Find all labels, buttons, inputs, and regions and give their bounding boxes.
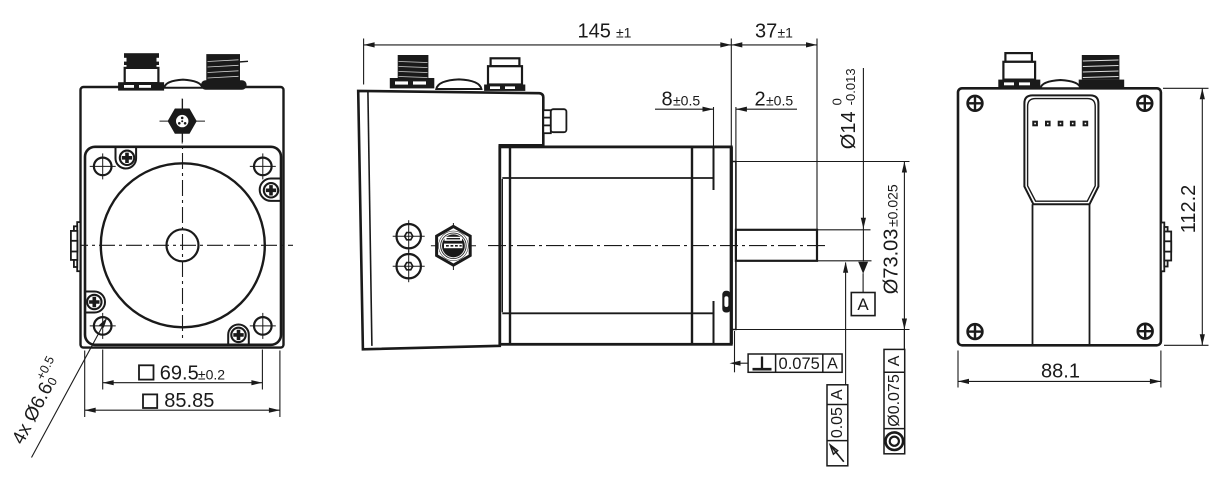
svg-text:0.05: 0.05 bbox=[829, 407, 846, 438]
svg-text:8: 8 bbox=[662, 88, 673, 110]
svg-text:112.2: 112.2 bbox=[1178, 185, 1200, 234]
svg-text:2: 2 bbox=[755, 88, 766, 110]
svg-text:A: A bbox=[827, 356, 838, 373]
svg-text:A: A bbox=[857, 295, 869, 314]
svg-text:85.85: 85.85 bbox=[164, 390, 214, 412]
svg-text:37: 37 bbox=[755, 21, 777, 43]
svg-text:±1: ±1 bbox=[778, 25, 794, 41]
svg-text:0.075: 0.075 bbox=[779, 355, 820, 373]
svg-text:±0.025: ±0.025 bbox=[884, 184, 900, 227]
svg-text:Ø73.03: Ø73.03 bbox=[880, 229, 902, 295]
svg-text:-0.013: -0.013 bbox=[843, 68, 858, 105]
svg-text:88.1: 88.1 bbox=[1041, 361, 1080, 383]
svg-text:±0.2: ±0.2 bbox=[198, 367, 225, 383]
svg-text:±1: ±1 bbox=[616, 25, 632, 41]
svg-text:69.5: 69.5 bbox=[160, 363, 199, 385]
svg-text:±0.5: ±0.5 bbox=[766, 92, 793, 108]
svg-text:Ø0.075: Ø0.075 bbox=[886, 374, 903, 427]
svg-text:A: A bbox=[886, 355, 903, 366]
svg-text:A: A bbox=[829, 389, 846, 400]
svg-text:145: 145 bbox=[578, 21, 611, 43]
svg-text:±0.5: ±0.5 bbox=[673, 92, 700, 108]
svg-text:Ø14: Ø14 bbox=[838, 111, 860, 149]
